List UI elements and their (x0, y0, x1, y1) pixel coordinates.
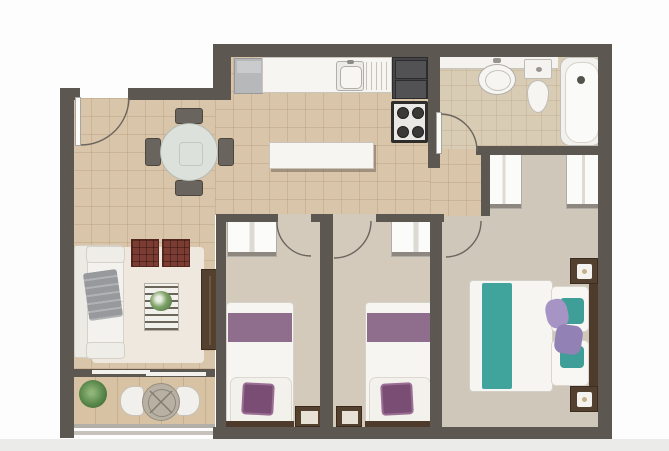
pouf-left (131, 239, 159, 267)
sink-drainboard (366, 62, 388, 90)
dining-chair-bottom (175, 180, 203, 196)
master-nightstand-bottom (570, 386, 598, 412)
master-wardrobe-left (486, 151, 522, 209)
kitchen-island (269, 142, 374, 169)
sliding-door-panel-2 (146, 372, 206, 376)
wall-bedroom1-left (216, 214, 226, 430)
dining-table (160, 123, 218, 181)
bathtub (560, 57, 602, 146)
floor-plan (0, 0, 669, 451)
sofa-throw-blanket (83, 269, 123, 321)
kitchen-sink (336, 61, 364, 91)
master-wardrobe-right (566, 151, 601, 209)
wall-bedroom-divider (320, 214, 333, 430)
bedroom2-bed-blanket (367, 313, 431, 342)
bedroom2-cushion (380, 382, 414, 416)
dining-chair-top (175, 108, 203, 124)
dining-chair-left (145, 138, 161, 166)
terrace-railing-inner (74, 431, 215, 435)
pouf-right (162, 239, 190, 267)
bathroom-door-leaf (436, 112, 442, 154)
master-bed-teal-stripe (482, 283, 512, 389)
terrace-plant (79, 380, 107, 408)
sofa-armrest-top (86, 246, 125, 263)
wall-bedroom2-master-divider (430, 214, 442, 430)
wall-bathroom-bottom (476, 146, 602, 155)
bedroom1-bed-blanket (228, 313, 292, 342)
wall-right (598, 44, 612, 438)
coffee-table-plant (150, 291, 172, 311)
bedroom1-cushion (241, 382, 275, 416)
wall-master-left-upper (481, 146, 490, 216)
refrigerator (234, 58, 263, 94)
bedroom1-wardrobe (227, 218, 277, 257)
master-bed (469, 280, 553, 392)
sofa-armrest-bottom (86, 342, 125, 359)
lamp-icon (582, 397, 587, 402)
bathroom-faucet-icon (493, 58, 501, 63)
bathtub-drain-icon (577, 76, 585, 84)
wall-top-left (128, 88, 224, 100)
bedroom2-wall-frame (336, 406, 362, 427)
toilet-tank (524, 59, 552, 79)
sliding-door-panel-1 (92, 370, 150, 374)
cooktop (391, 101, 428, 143)
terrace-table (142, 383, 180, 421)
terrace-railing-outer (74, 424, 215, 428)
master-lavender-throw (553, 323, 584, 355)
wall-top (213, 44, 612, 57)
bottom-gray-band (0, 439, 669, 451)
bathroom-sink (478, 64, 516, 95)
sink-faucet-icon (347, 60, 354, 64)
terrace-chair-left (120, 386, 144, 416)
oven-tower (392, 57, 428, 99)
entrance-door-leaf (75, 97, 81, 146)
bedroom1-wall-frame (295, 406, 322, 427)
master-nightstand-top (570, 258, 598, 284)
dining-chair-right (218, 138, 234, 166)
wall-left (60, 88, 74, 438)
lamp-icon (582, 269, 587, 274)
